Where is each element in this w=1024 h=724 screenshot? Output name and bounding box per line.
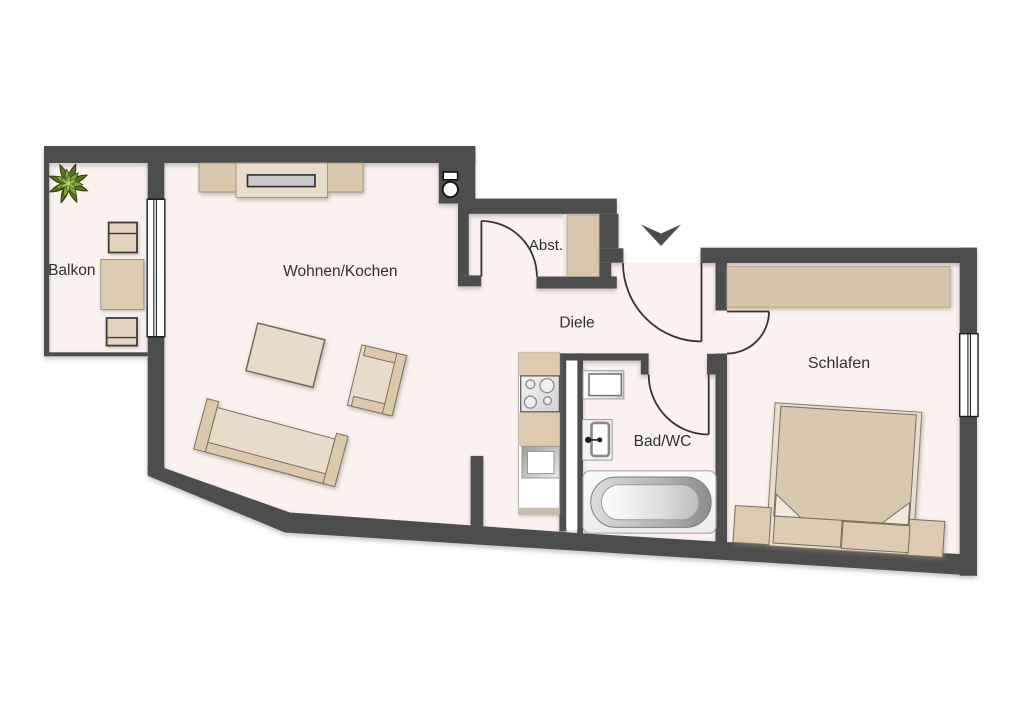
svg-text:Wohnen/Kochen: Wohnen/Kochen	[283, 263, 397, 280]
svg-text:Balkon: Balkon	[48, 262, 95, 279]
svg-text:Schlafen: Schlafen	[808, 355, 870, 372]
svg-text:Bad/WC: Bad/WC	[634, 433, 692, 450]
svg-text:Diele: Diele	[559, 315, 594, 332]
svg-text:Abst.: Abst.	[529, 237, 563, 254]
